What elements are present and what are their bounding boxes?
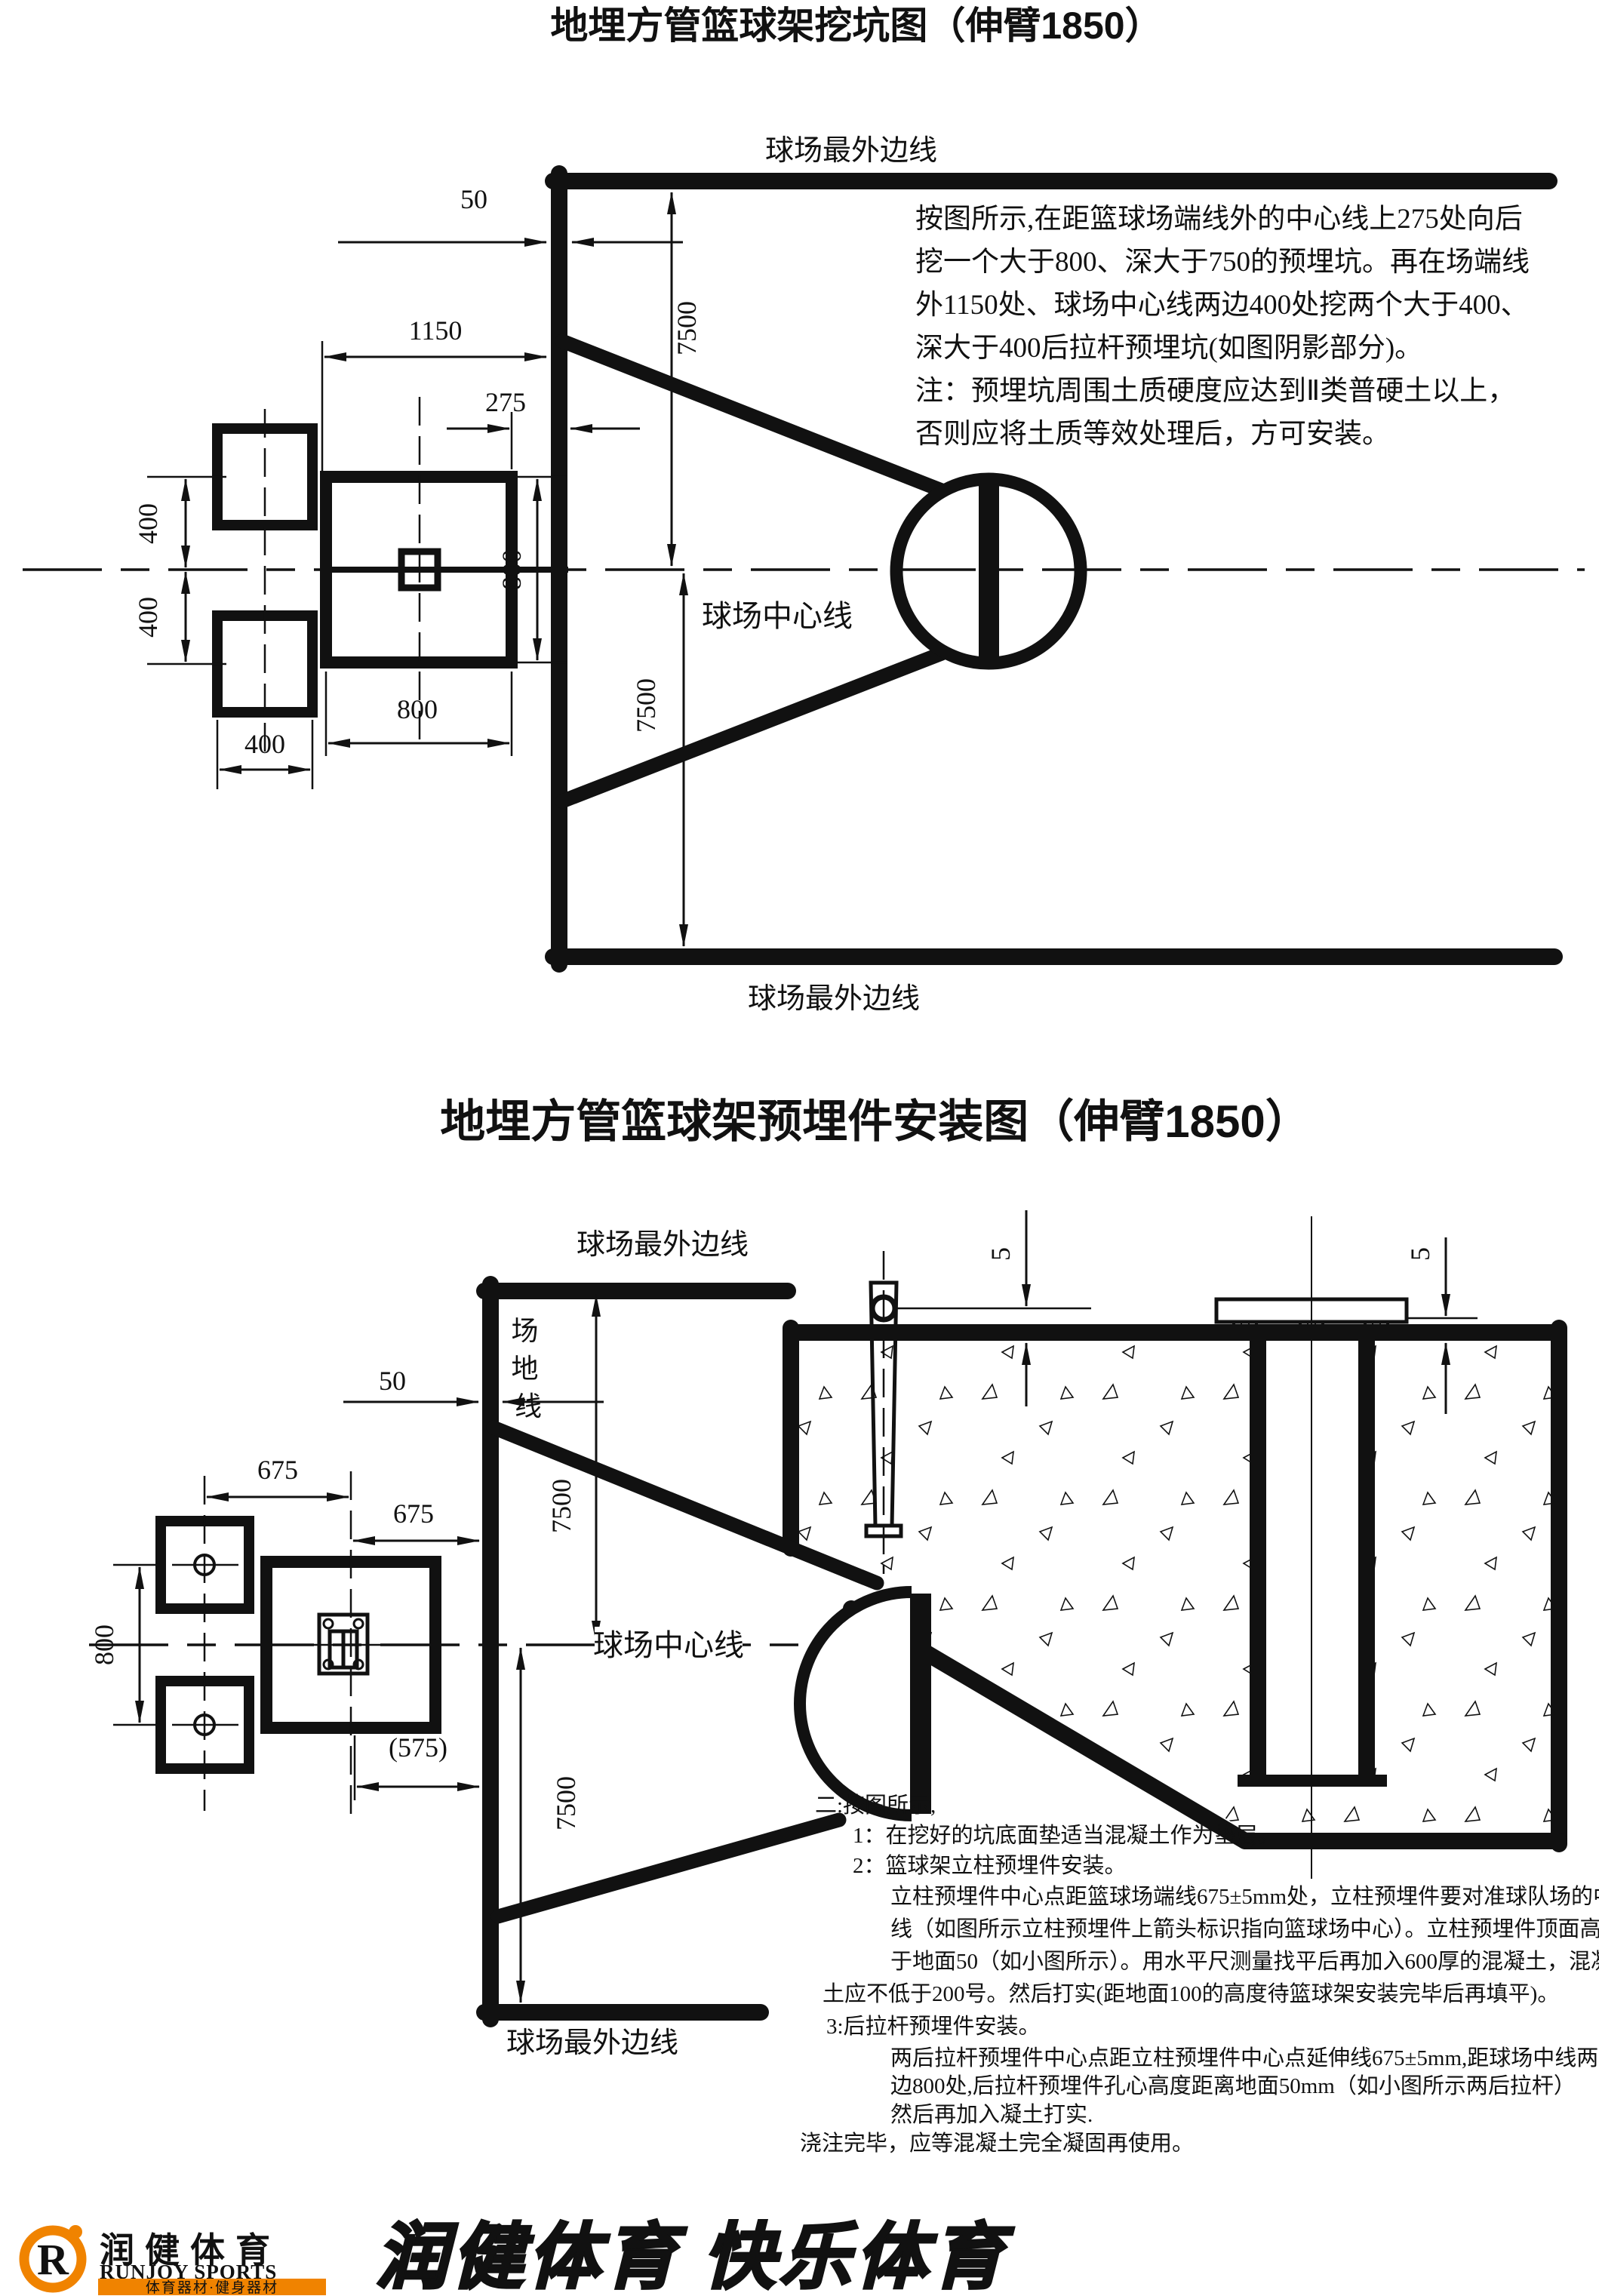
rear-rod-plates-plan [161, 1476, 249, 1811]
note-line: 按图所示,在距篮球场端线外的中心线上275处向后 [915, 198, 1599, 241]
dimension-50: 50 [343, 1366, 604, 1402]
dim-400b-text: 400 [133, 597, 163, 638]
dimension-400-width: 400 [217, 720, 312, 789]
label-outer-line-top: 球场最外边线 [577, 1229, 749, 1261]
note-line: 3:后拉杆预埋件安装。 [826, 2009, 1041, 2040]
note-line: 两后拉杆预埋件中心点距立柱预埋件中心点延伸线675±5mm,距球场中线两 [890, 2040, 1598, 2072]
label-field-line: 场 地 线 [511, 1316, 545, 1422]
dimension-7500-lower: 7500 [521, 1648, 581, 2002]
diagram1-notes: 按图所示,在距篮球场端线外的中心线上275处向后 挖一个大于800、深大于750… [915, 198, 1599, 456]
dim-400w-text: 400 [244, 729, 285, 759]
dim-800h-text: 800 [497, 549, 527, 590]
note-line: 2：篮球架立柱预埋件安装。 [853, 1848, 1127, 1880]
diagram2-title: 地埋方管篮球架预埋件安装图（伸臂1850） [192, 1085, 1558, 1151]
column-embed-tube [1238, 1216, 1387, 1879]
dim-400a-text: 400 [133, 503, 163, 544]
diagram1-pit-plan: 50 7500 7500 1150 275 400 [0, 0, 1599, 1071]
note-line: 否则应将土质等效处理后，方可安装。 [915, 413, 1599, 456]
dimension-275: 275 [447, 387, 640, 469]
dim-7500u-text: 7500 [672, 301, 702, 355]
label-center-line: 球场中心线 [702, 599, 853, 633]
dimension-675-b: 675 [353, 1498, 479, 1541]
note-line: 挖一个大于800、深大于750的预埋坑。再在场端线 [915, 241, 1599, 284]
label-outer-line-top: 球场最外边线 [765, 135, 937, 167]
brand-logo: R [24, 2225, 82, 2288]
dim-5l-text: 5 [986, 1247, 1016, 1261]
dim-275-text: 275 [485, 387, 526, 417]
label-center-line: 球场中心线 [593, 1628, 744, 1662]
note-line: 线（如图所示立柱预埋件上箭头标识指向篮球场中心）。立柱预埋件顶面高 [890, 1911, 1599, 1943]
dim-7500l-text: 7500 [631, 678, 661, 733]
dimension-50: 50 [338, 184, 683, 242]
drawing-sheet: 地埋方管篮球架挖坑图（伸臂1850） [0, 0, 1599, 2296]
note-line: 边800处,后拉杆预埋件孔心高度距离地面50mm（如小图所示两后拉杆） [890, 2068, 1576, 2100]
logo-letter: R [37, 2235, 69, 2284]
note-line: 然后再加入凝土打实. [890, 2097, 1093, 2128]
backboard-braces [562, 341, 942, 801]
note-line: 深大于400后拉杆预埋坑(如图阴影部分)。 [915, 327, 1599, 370]
dim-7500l-text: 7500 [551, 1776, 581, 1830]
dim-1150-text: 1150 [409, 315, 463, 346]
note-line: 注：预埋坑周围土质硬度应达到Ⅱ类普硬土以上， [915, 370, 1599, 413]
footer-brand: R 润健体育 RUNJOY SPORTS 体育器材·健身器材 润健体育 快乐体育 [0, 2215, 1599, 2296]
pole-circle [896, 479, 1081, 663]
dim-50-text: 50 [460, 184, 487, 214]
logo-dot-icon [69, 2225, 82, 2239]
note-line: 外1150处、球场中心线两边400处挖两个大于400、 [915, 284, 1599, 327]
dimension-575: (575) [355, 1732, 479, 1800]
diagram2-install-view: 675 675 50 800 (575) 7500 7500 [0, 1162, 1599, 2177]
dim-800w-text: 800 [397, 694, 438, 724]
label-outer-line-bottom: 球场最外边线 [748, 983, 920, 1015]
dim-675a-text: 675 [257, 1455, 298, 1485]
label-outer-line-bottom: 球场最外边线 [506, 2027, 678, 2059]
pole-half-section [800, 1592, 931, 1815]
note-line: 土应不低于200号。然后打实(距地面100的高度待篮球架安装完毕后再填平)。 [823, 1976, 1559, 2008]
dim-7500u-text: 7500 [546, 1479, 577, 1533]
note-line: 浇注完毕，应等混凝土完全凝固再使用。 [800, 2125, 1194, 2157]
note-line: 二:按图所示, [815, 1787, 936, 1819]
dimension-675-a: 675 [207, 1455, 349, 1497]
brand-slogan: 润健体育 快乐体育 [376, 2218, 1014, 2296]
brand-subtitle: 体育器材·健身器材 [146, 2279, 278, 2296]
note-line: 立柱预埋件中心点距篮球场端线675±5mm处，立柱预埋件要对准球队场的中 [890, 1879, 1599, 1910]
dim-675b-text: 675 [393, 1498, 434, 1529]
note-line: 1：在挖好的坑底面垫适当混凝土作为垫层。 [853, 1818, 1280, 1849]
dim-50-text: 50 [379, 1366, 406, 1396]
dim-800-text: 800 [89, 1624, 119, 1665]
note-line: 于地面50（如小图所示）。用水平尺测量找平后再加入600厚的混凝土，混凝 [890, 1944, 1599, 1975]
dim-5r-text: 5 [1405, 1247, 1435, 1261]
dim-575-text: (575) [389, 1732, 447, 1763]
